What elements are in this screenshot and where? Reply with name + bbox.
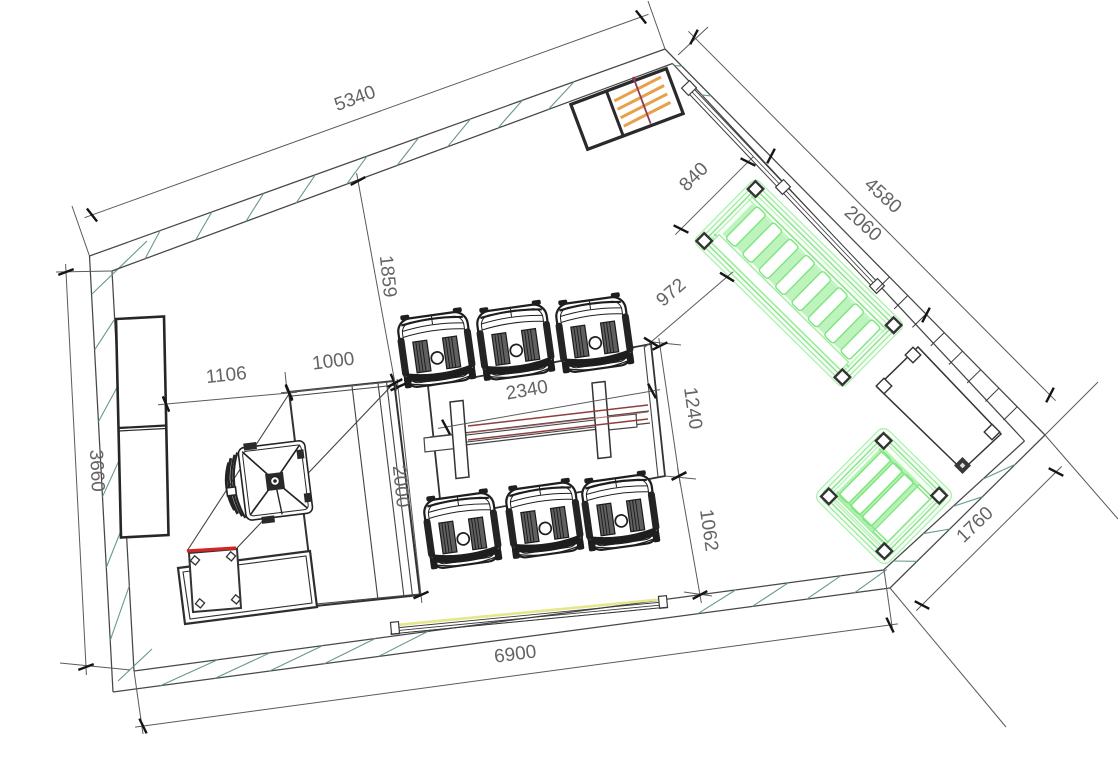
svg-text:1859: 1859 [375,254,400,298]
svg-text:3660: 3660 [85,449,108,492]
svg-text:2000: 2000 [388,464,413,508]
svg-text:1106: 1106 [205,363,248,388]
